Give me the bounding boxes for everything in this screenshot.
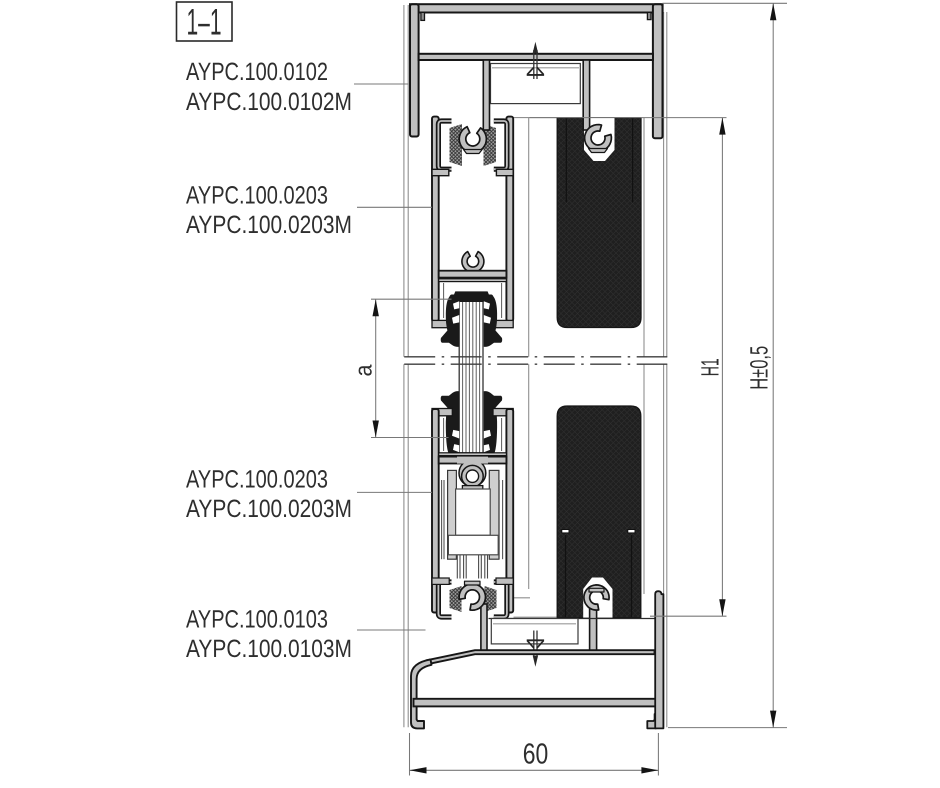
svg-text:AYPC.100.0203: AYPC.100.0203 (186, 465, 328, 493)
svg-text:H1: H1 (696, 358, 724, 376)
svg-text:H±0,5: H±0,5 (745, 346, 773, 390)
svg-text:AYPC.100.0102M: AYPC.100.0102M (186, 88, 352, 116)
svg-text:AYPC.100.0203M: AYPC.100.0203M (186, 495, 352, 523)
svg-text:1–1: 1–1 (187, 2, 222, 43)
svg-text:AYPC.100.0103M: AYPC.100.0103M (186, 635, 352, 663)
svg-text:AYPC.100.0103: AYPC.100.0103 (186, 605, 328, 633)
svg-text:AYPC.100.0203M: AYPC.100.0203M (186, 211, 352, 239)
svg-text:AYPC.100.0203: AYPC.100.0203 (186, 182, 328, 210)
svg-text:60: 60 (523, 739, 549, 771)
svg-text:AYPC.100.0102: AYPC.100.0102 (186, 58, 328, 86)
svg-text:a: a (351, 364, 378, 377)
